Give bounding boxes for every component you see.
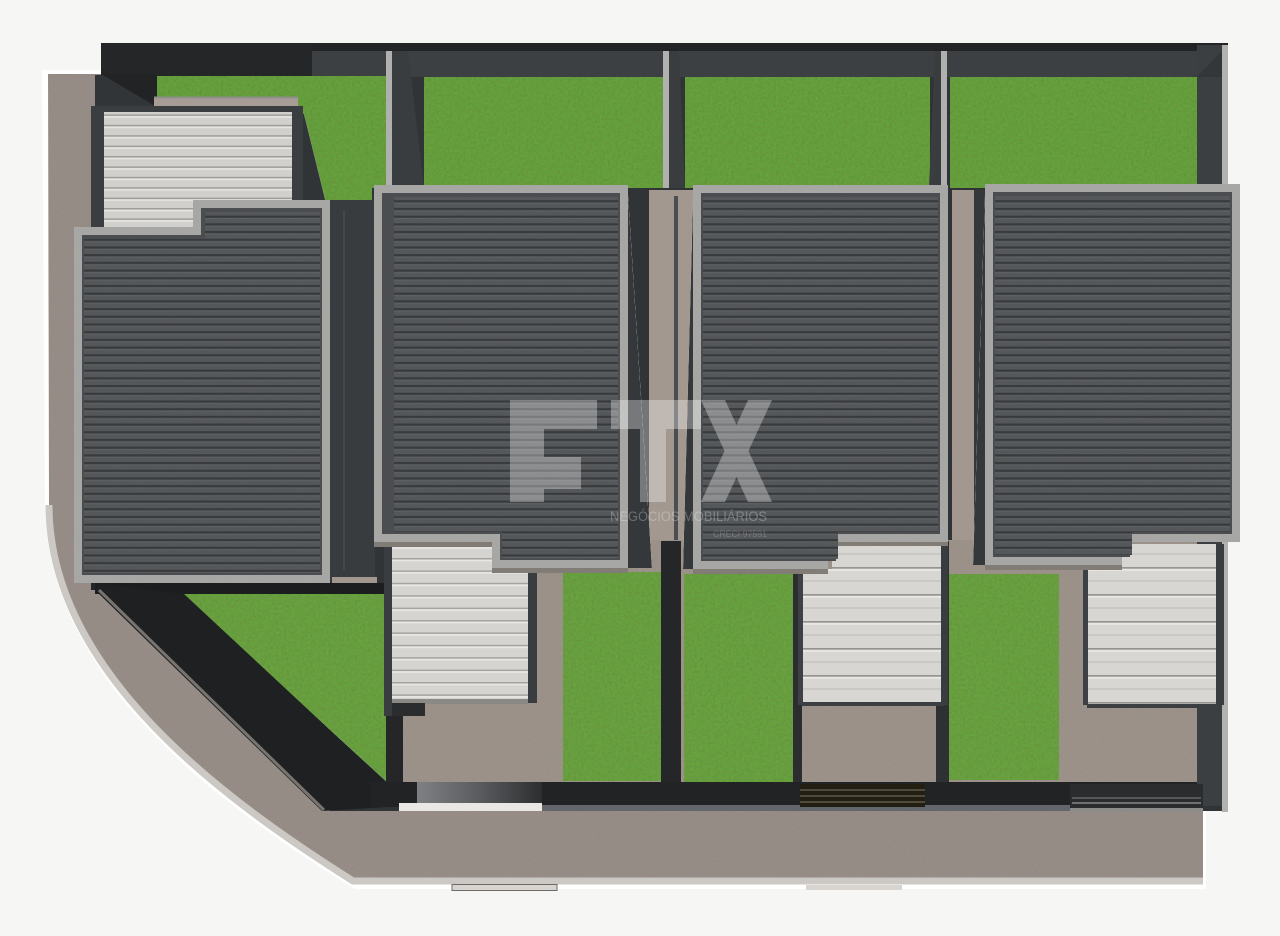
svg-text:CRECI 97591: CRECI 97591	[713, 529, 767, 540]
svg-text:NEGÓCIOS MOBILIÁRIOS: NEGÓCIOS MOBILIÁRIOS	[610, 509, 767, 524]
